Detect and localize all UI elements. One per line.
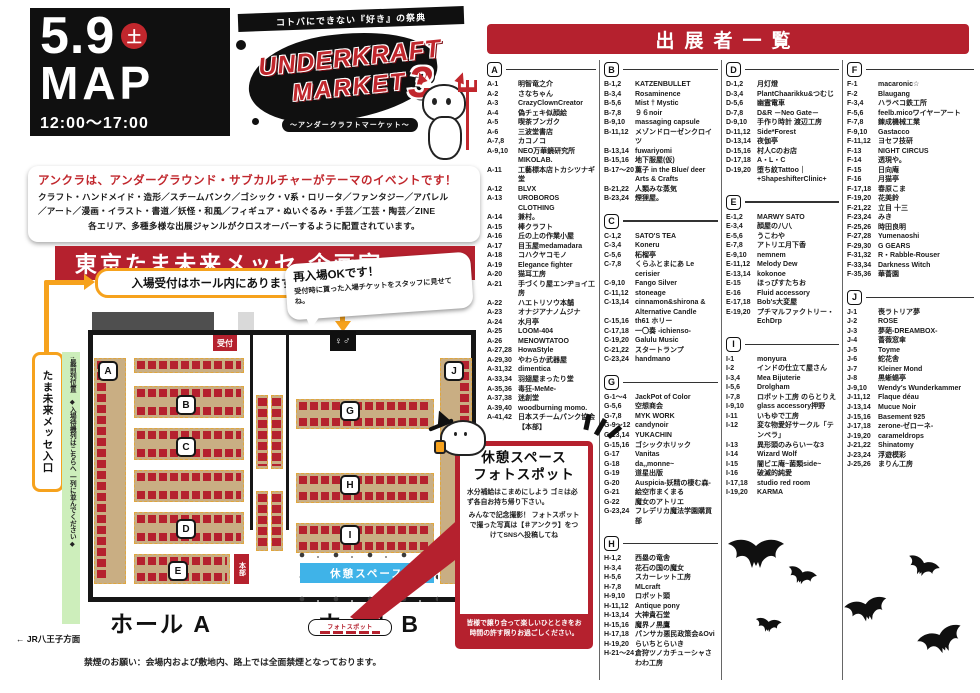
exhibitor-name: candynoir xyxy=(635,421,718,431)
exhibitor-name: くらふとまにあ Le cerisier xyxy=(635,260,718,279)
exhibitor-name: Elegance fighter xyxy=(518,261,596,271)
exhibitor-name: 蛇花舎 xyxy=(878,355,974,365)
hall-badge-H: H xyxy=(340,475,360,495)
exhibitor-row: H-17,18パンサカ悪民政策会&Ovi xyxy=(604,630,718,640)
exhibitor-name: feelb.micoワイヤーアート xyxy=(878,109,974,119)
exhibitor-row: G-5,6空想商会 xyxy=(604,402,718,412)
exhibitor-row: E-9,10nemnem xyxy=(726,251,839,261)
booth-code: C-17,18 xyxy=(604,327,635,337)
booth-code: F-33,34 xyxy=(847,261,878,271)
exhibitor-name: Vanitas xyxy=(635,450,718,460)
exhibitor-name: Galulu Music xyxy=(635,336,718,346)
exhibitor-name: さなちゃん xyxy=(518,90,596,100)
booth-code: I-19,20 xyxy=(726,488,757,498)
booth-code: F-14 xyxy=(847,156,878,166)
booth-code: I-14 xyxy=(726,450,757,460)
exhibitor-name: Bob's大変屋 xyxy=(757,298,839,308)
exhibitor-row: G-7,8MYK WORK xyxy=(604,412,718,422)
exhibitor-row: G-17Vanitas xyxy=(604,450,718,460)
restroom-icon: ♀♂ xyxy=(330,331,356,351)
exhibitor-name: Wendy's Wunderkammer xyxy=(878,384,974,394)
booth-code: H-3,4 xyxy=(604,564,635,574)
booth-code: F-17,18 xyxy=(847,185,878,195)
exhibitor-row: A-5喫茶ブンガク xyxy=(487,118,596,128)
exhibitor-name: ROSE xyxy=(878,317,974,327)
exhibitor-row: D-9,10手作り時計 渡辺工房 xyxy=(726,118,839,128)
exhibitor-name: cinnamon&shirona & Alternative Candle xyxy=(635,298,718,317)
jr-direction-note: ← JR八王子方面 xyxy=(16,633,80,645)
intro-note: 各エリア、多種多様な出展ジャンルがクロスオーバーするように配置されています。 xyxy=(38,220,470,232)
exhibitor-name: まりん工房 xyxy=(878,460,974,470)
exhibitor-name: NIGHT CIRCUS xyxy=(878,147,974,157)
venue-map: 入場受付はホール内にあります 再入場OKです！ 受付時に貰った入場チケットをスタ… xyxy=(0,255,490,693)
booth-code: F-9,10 xyxy=(847,128,878,138)
booth-code: F-11,12 xyxy=(847,137,878,147)
day-of-week-badge: 土 xyxy=(121,23,147,49)
exhibitor-name: 一〇奏 -ichienso- xyxy=(635,327,718,337)
section-letter-badge: E xyxy=(726,195,741,210)
booth-code: A-23 xyxy=(487,308,518,318)
section-letter-badge: A xyxy=(487,62,502,77)
exhibitor-name: 水月亭 xyxy=(518,318,596,328)
exhibitor-name: 柘榴亭 xyxy=(635,251,718,261)
exhibitor-row: J-21,22Shinatomy xyxy=(847,441,974,451)
exhibitor-row: H-19,20らいちとらいき xyxy=(604,640,718,650)
exhibitor-row: H-5,6スカーレット工房 xyxy=(604,573,718,583)
exhibitor-row: A-19Elegance fighter xyxy=(487,261,596,271)
booth-code: B-1,2 xyxy=(604,80,635,90)
booth-block xyxy=(134,470,244,502)
exhibitor-name: studio red room xyxy=(757,479,839,489)
booth-code: G-1〜4 xyxy=(604,393,635,403)
booth-code: E-13,14 xyxy=(726,270,757,280)
hall-badge-C: C xyxy=(176,437,196,457)
exhibitor-name: Fluid accessory xyxy=(757,289,839,299)
exhibitor-name: 絵空市まくまる xyxy=(635,488,718,498)
exhibitor-row: F-19,20花美鈴 xyxy=(847,194,974,204)
exhibitor-name: 夜伽亭 xyxy=(757,137,839,147)
queue-arrow xyxy=(44,282,49,354)
booth-code: J-17,18 xyxy=(847,422,878,432)
exhibitor-name: 闇ビエ庵~菌類side~ xyxy=(757,460,839,470)
exhibitor-row: F-35,36華薔園 xyxy=(847,270,974,280)
exhibitor-name: carameldrops xyxy=(878,432,974,442)
booth-code: E-16 xyxy=(726,289,757,299)
booth-code: C-19,20 xyxy=(604,336,635,346)
booth-code: A-19 xyxy=(487,261,518,271)
exhibitor-name: Shinatomy xyxy=(878,441,974,451)
exhibitor-row: J-19,20carameldrops xyxy=(847,432,974,442)
exhibitor-name: macaronic☆ xyxy=(878,80,974,90)
booth-code: B-21,22 xyxy=(604,185,635,195)
booth-code: D-15,16 xyxy=(726,147,757,157)
booth-code: H-13,14 xyxy=(604,611,635,621)
booth-code: A-1 xyxy=(487,80,518,90)
booth-code: G-23,24 xyxy=(604,507,635,526)
exhibitor-row: G-1〜4JackPot of Color xyxy=(604,393,718,403)
exhibitor-name: Yumenaoshi xyxy=(878,232,974,242)
exhibitor-row: C-11,12stoneage xyxy=(604,289,718,299)
exhibitor-row: B-9,10massaging capsule xyxy=(604,118,718,128)
intro-genres-line1: クラフト・ハンドメイド・造形／スチームパンク／ゴシック・V系・ロリータ／ファンタ… xyxy=(38,191,470,203)
exhibitor-row: G-21絵空市まくまる xyxy=(604,488,718,498)
exhibitor-name: Gastacco xyxy=(878,128,974,138)
exhibitor-name: Mist † Mystic xyxy=(635,99,718,109)
corridor-wall xyxy=(250,330,253,530)
exhibitor-name: 時田良明 xyxy=(878,223,974,233)
reception-desk: 受付 xyxy=(213,335,237,351)
exhibitor-row: J-11,12Flaque déau xyxy=(847,393,974,403)
reentry-bubble: 再入場OKです！ 受付時に貰った入場チケットをスタッフに見せてね。 xyxy=(284,252,473,321)
exhibitor-row: H-15,16魔界ノ黒鷹 xyxy=(604,621,718,631)
booth-code: C-3,4 xyxy=(604,241,635,251)
exhibitor-row: F-16月猫亭 xyxy=(847,175,974,185)
booth-code: E-15 xyxy=(726,279,757,289)
exhibitor-row: F-21,22立目 十三 xyxy=(847,204,974,214)
exhibitor-name: 薔薇窓傘 xyxy=(878,336,974,346)
exhibitor-name: 倉狩ツノカチューシャさわわ工房 xyxy=(635,649,718,668)
booth-code: F-25,26 xyxy=(847,223,878,233)
hall-a-label: ホール A xyxy=(110,605,212,639)
exhibitor-row: J-2ROSE xyxy=(847,317,974,327)
exhibitor-row: A-25LOOM-404 xyxy=(487,327,596,337)
exhibitor-name: Mucue Noir xyxy=(878,403,974,413)
exhibitor-name: ９６noir xyxy=(635,109,718,119)
exhibitor-name: ヨセフ技研 xyxy=(878,137,974,147)
exhibitor-name: 目玉屋medamadara xyxy=(518,242,596,252)
exhibitor-row: E-16Fluid accessory xyxy=(726,289,839,299)
exhibitor-column: FF-1macaronic☆F-2BlaugangF-3,4ハラペコ鉄工所F-5… xyxy=(842,60,977,680)
exhibitor-row: F-31,32R・Rabble-Rouser xyxy=(847,251,974,261)
exhibitor-row: F-33,34Darkness Witch xyxy=(847,261,974,271)
booth-code: C-7,8 xyxy=(604,260,635,279)
exhibitor-name: 錬成機械工業 xyxy=(878,118,974,128)
exhibitor-row: I-19,20KARMA xyxy=(726,488,839,498)
exhibitor-name: 棒クラフト xyxy=(518,223,596,233)
exhibitor-row: A-12BLVX xyxy=(487,185,596,195)
booth-code: J-1 xyxy=(847,308,878,318)
exhibitor-row: C-21,22スタートランプ xyxy=(604,346,718,356)
exhibitor-row: A-23オナジアナノムジナ xyxy=(487,308,596,318)
event-date: 5.9 xyxy=(40,10,115,62)
exhibitor-row: I-3,4Mea Bijuterie xyxy=(726,374,839,384)
exhibitor-row: B-1,2KATZENBULLET xyxy=(604,80,718,90)
booth-code: F-27,28 xyxy=(847,232,878,242)
booth-code: A-11 xyxy=(487,166,518,185)
exhibitor-row: C-9,10Fango Silver xyxy=(604,279,718,289)
exhibitor-row: A-37,38迷創堂 xyxy=(487,394,596,404)
exhibitor-row: F-3,4ハラペコ鉄工所 xyxy=(847,99,974,109)
booth-code: C-21,22 xyxy=(604,346,635,356)
exhibitor-row: F-5,6feelb.micoワイヤーアート xyxy=(847,109,974,119)
exhibitor-row: J-9,10Wendy's Wunderkammer xyxy=(847,384,974,394)
exhibitor-row: D-3,4PlantChaarikku&つむじ xyxy=(726,90,839,100)
section-header-J: J xyxy=(847,290,974,305)
exhibitor-row: J-8黒蜥蜴亭 xyxy=(847,374,974,384)
booth-code: H-5,6 xyxy=(604,573,635,583)
exhibitor-name: da,,monne~ xyxy=(635,460,718,470)
exhibitor-row: I-16破滅的純愛 xyxy=(726,469,839,479)
queue-lane: ↑最前列位置 ◆入場待機列はこちらへ 一列に並んでください◆ xyxy=(62,352,80,624)
info-hydration-note: 水分補給はこまめにしよう ゴミは必ず各自お持ち帰り下さい。 xyxy=(467,488,581,508)
intro-banner: アンクラは、アンダーグラウンド・サブカルチャーがテーマのイベントです！ クラフト… xyxy=(28,166,480,242)
exhibitor-name: Flaque déau xyxy=(878,393,974,403)
booth-code: B-7,8 xyxy=(604,109,635,119)
booth-code: I-3,4 xyxy=(726,374,757,384)
booth-code: G-21 xyxy=(604,488,635,498)
booth-code: B-11,12 xyxy=(604,128,635,147)
exhibitor-name: th61 ホリー xyxy=(635,317,718,327)
booth-code: F-19,20 xyxy=(847,194,878,204)
exhibitor-name: 薫子 in the Blue/ deer Arts & Crafts xyxy=(635,166,718,185)
section-header-A: A xyxy=(487,62,596,77)
exhibitor-name: スカーレット工房 xyxy=(635,573,718,583)
exhibitor-name: PlantChaarikku&つむじ xyxy=(757,90,839,100)
hall-badge-J: J xyxy=(444,361,464,381)
exhibitor-name: 西塁の竜舎 xyxy=(635,554,718,564)
booth-code: D-5,6 xyxy=(726,99,757,109)
booth-code: A-41,42 xyxy=(487,413,518,432)
exhibitor-name: 顔屋の八八 xyxy=(757,222,839,232)
booth-code: B-17〜20 xyxy=(604,166,635,185)
exhibitor-name: 明智竜之介 xyxy=(518,80,596,90)
booth-code: G-5,6 xyxy=(604,402,635,412)
booth-code: A-26 xyxy=(487,337,518,347)
exhibitor-row: A-26MENOWTATOO xyxy=(487,337,596,347)
booth-code: A-27,28 xyxy=(487,346,518,356)
booth-code: F-15 xyxy=(847,166,878,176)
exhibitor-name: handmano xyxy=(635,355,718,365)
exhibitor-name: 月灯燈 xyxy=(757,80,839,90)
exhibitor-row: D-19,20堕ち紋Tattoo｜ +ShapeshifterClinic+ xyxy=(726,166,839,185)
booth-code: F-5,6 xyxy=(847,109,878,119)
booth-code: A-25 xyxy=(487,327,518,337)
booth-code: H-1,2 xyxy=(604,554,635,564)
booth-code: D-1,2 xyxy=(726,80,757,90)
exhibitor-name: アトリエ月下香 xyxy=(757,241,839,251)
booth-code: A-14 xyxy=(487,213,518,223)
exhibitor-row: I-1monyura xyxy=(726,355,839,365)
exhibitor-row: A-2さなちゃん xyxy=(487,90,596,100)
booth-code: E-9,10 xyxy=(726,251,757,261)
exhibitor-name: カコノコ xyxy=(518,137,596,147)
exhibitor-name: 羽翅屋まったり堂 xyxy=(518,375,596,385)
exhibitor-row: A-35,36毒狂-MeMe- xyxy=(487,385,596,395)
exhibitor-row: I-11いもゆで工房 xyxy=(726,412,839,422)
exhibitor-row: F-1macaronic☆ xyxy=(847,80,974,90)
booth-code: A-13 xyxy=(487,194,518,213)
exhibitor-list-title: 出展者一覧 xyxy=(487,24,969,54)
exhibitor-name: Rosaminence xyxy=(635,90,718,100)
exhibitor-name: 異形頭のみらいーな3 xyxy=(757,441,839,451)
exhibitor-column: DD-1,2月灯燈D-3,4PlantChaarikku&つむじD-5,6幽霊電… xyxy=(721,60,842,680)
booth-code: C-1,2 xyxy=(604,232,635,242)
hall-badge-I: I xyxy=(340,525,360,545)
booth-block-f xyxy=(271,395,283,469)
exhibitor-name: MLcraft xyxy=(635,583,718,593)
booth-code: D-3,4 xyxy=(726,90,757,100)
section-header-C: C xyxy=(604,214,718,229)
exhibitor-row: I-12変な物愛好サークル「テンペラ」 xyxy=(726,421,839,440)
exhibitor-row: A-18コハクヤコモノ xyxy=(487,251,596,261)
booth-column-a xyxy=(94,358,126,584)
exhibitor-row: F-17,18春原こま xyxy=(847,185,974,195)
exhibitor-name: Side*Forest xyxy=(757,128,839,138)
exhibitor-row: J-17,18zerone-ゼローネ- xyxy=(847,422,974,432)
exhibitor-name: 幽霊電車 xyxy=(757,99,839,109)
exhibitor-name: ロボット工房 のらとりえ xyxy=(757,393,839,403)
booth-code: B-23,24 xyxy=(604,194,635,204)
booth-code: D-7,8 xyxy=(726,109,757,119)
exhibitor-row: H-3,4花石の国の魔女 xyxy=(604,564,718,574)
exhibitor-name: ほっぴすたちお xyxy=(757,279,839,289)
lantern-icon xyxy=(434,440,446,454)
exhibitor-row: F-27,28Yumenaoshi xyxy=(847,232,974,242)
exhibitor-name: 兼村。 xyxy=(518,213,596,223)
exhibitor-row: F-14透現や。 xyxy=(847,156,974,166)
booth-code: H-9,10 xyxy=(604,592,635,602)
exhibitor-name: やわらか武器屋 xyxy=(518,356,596,366)
exhibitor-row: I-17,18studio red room xyxy=(726,479,839,489)
exhibitor-name: 月猫亭 xyxy=(878,175,974,185)
exhibitor-name: Koneru xyxy=(635,241,718,251)
exhibitor-row: B-7,8９６noir xyxy=(604,109,718,119)
exhibitor-name: 丘の上の作業小屋 xyxy=(518,232,596,242)
exhibitor-row: E-11,12Melody Dew xyxy=(726,260,839,270)
booth-code: F-2 xyxy=(847,90,878,100)
exhibitor-row: I-9,10glass accessory押野 xyxy=(726,402,839,412)
exhibitor-row: E-17,18Bob's大変屋 xyxy=(726,298,839,308)
booth-code: J-21,22 xyxy=(847,441,878,451)
exhibitor-row: C-13,14cinnamon&shirona & Alternative Ca… xyxy=(604,298,718,317)
exhibitor-name: 煙狸屋。 xyxy=(635,194,718,204)
booth-block-f xyxy=(256,491,268,551)
section-letter-badge: C xyxy=(604,214,619,229)
exhibitor-row: F-23,24みき xyxy=(847,213,974,223)
exhibitor-row: H-21〜24倉狩ツノカチューシャさわわ工房 xyxy=(604,649,718,668)
booth-code: E-11,12 xyxy=(726,260,757,270)
booth-code: F-7,8 xyxy=(847,118,878,128)
exhibitor-row: G-20Auspicia-妖精の棲む森- xyxy=(604,479,718,489)
booth-code: C-5,6 xyxy=(604,251,635,261)
section-header-D: D xyxy=(726,62,839,77)
exhibitor-row: A-21手づくり屋エンヂョイ工房 xyxy=(487,280,596,299)
exhibitor-name: 道星出版 xyxy=(635,469,718,479)
exhibitor-name: スタートランプ xyxy=(635,346,718,356)
exhibitor-row: B-11,12メゾンドローゼンクロイツ xyxy=(604,128,718,147)
booth-code: I-7,8 xyxy=(726,393,757,403)
exhibitor-row: I-2インドの仕立て屋さん xyxy=(726,364,839,374)
exhibitor-name: kokonoe xyxy=(757,270,839,280)
mascot-body xyxy=(428,116,462,160)
booth-code: I-15 xyxy=(726,460,757,470)
booth-code: A-7,8 xyxy=(487,137,518,147)
exhibitor-name: 地下服屋(仮) xyxy=(635,156,718,166)
section-letter-badge: J xyxy=(847,290,862,305)
exhibitor-row: J-1喪ラトリア夢 xyxy=(847,308,974,318)
exhibitor-row: A-27,28HowaStyle xyxy=(487,346,596,356)
tagline-ribbon: コトバにできない『好き』の祭典 xyxy=(238,6,464,32)
booth-code: B-13,14 xyxy=(604,147,635,157)
exhibitor-row: F-7,8錬成機械工業 xyxy=(847,118,974,128)
exhibitor-name: G GEARS xyxy=(878,242,974,252)
exhibitor-name: Auspicia-妖精の棲む森- xyxy=(635,479,718,489)
exhibitor-row: D-11,12Side*Forest xyxy=(726,128,839,138)
exhibitor-name: 透現や。 xyxy=(878,156,974,166)
exhibitor-row: F-2Blaugang xyxy=(847,90,974,100)
booth-code: F-1 xyxy=(847,80,878,90)
booth-code: G-18 xyxy=(604,460,635,470)
exhibitor-name: Melody Dew xyxy=(757,260,839,270)
exhibitor-name: パンサカ悪民政策会&Ovi xyxy=(635,630,718,640)
section-header-B: B xyxy=(604,62,718,77)
exhibitor-row: C-5,6柘榴亭 xyxy=(604,251,718,261)
exhibitor-name: 魔界ノ黒鷹 xyxy=(635,621,718,631)
exhibitor-row: J-23,24浮遊模彩 xyxy=(847,451,974,461)
exhibitor-row: E-13,14kokonoe xyxy=(726,270,839,280)
exhibitor-name: glass accessory押野 xyxy=(757,402,839,412)
exhibitor-name: 人類みな蒸気 xyxy=(635,185,718,195)
booth-code: C-9,10 xyxy=(604,279,635,289)
exhibitor-name: らいちとらいき xyxy=(635,640,718,650)
logo-subtitle: 〜アンダークラフトマーケット〜 xyxy=(282,118,418,132)
section-header-I: I xyxy=(726,337,839,352)
exhibitor-name: Drolgham xyxy=(757,383,839,393)
booth-block-g xyxy=(296,399,434,429)
booth-code: I-16 xyxy=(726,469,757,479)
exhibitor-row: A-22ハエトリソウ本舗 xyxy=(487,299,596,309)
booth-code: A-24 xyxy=(487,318,518,328)
exhibitor-name: うこわや xyxy=(757,232,839,242)
exhibitor-name: CrazyClownCreator xyxy=(518,99,596,109)
booth-code: J-13,14 xyxy=(847,403,878,413)
section-letter-badge: F xyxy=(847,62,862,77)
booth-code: I-17,18 xyxy=(726,479,757,489)
exhibitor-row: J-15,16Basement 925 xyxy=(847,413,974,423)
booth-code: H-11,12 xyxy=(604,602,635,612)
exhibitor-row: H-13,14大神貴石堂 xyxy=(604,611,718,621)
hq-booth: 本部 xyxy=(234,554,249,584)
section-letter-badge: B xyxy=(604,62,619,77)
exhibitor-name: Fango Silver xyxy=(635,279,718,289)
exhibitor-row: I-15闇ビエ庵~菌類side~ xyxy=(726,460,839,470)
exhibitor-row: A-16丘の上の作業小屋 xyxy=(487,232,596,242)
exhibitor-row: E-7,8アトリエ月下香 xyxy=(726,241,839,251)
section-header-H: H xyxy=(604,536,718,551)
exhibitor-name: UROBOROS CLOTHING xyxy=(518,194,596,213)
section-header-G: G xyxy=(604,375,718,390)
booth-code: A-31,32 xyxy=(487,365,518,375)
booth-code: C-23,24 xyxy=(604,355,635,365)
booth-code: I-11 xyxy=(726,412,757,422)
booth-row xyxy=(134,358,244,373)
booth-code: E-5,6 xyxy=(726,232,757,242)
hall-badge-E: E xyxy=(168,561,188,581)
exhibitor-row: C-23,24handmano xyxy=(604,355,718,365)
booth-code: G-19 xyxy=(604,469,635,479)
booth-code: A-15 xyxy=(487,223,518,233)
section-header-E: E xyxy=(726,195,839,210)
event-flyer: 5.9 土 MAP 12:00〜17:00 コトバにできない『好き』の祭典 UN… xyxy=(0,0,980,693)
exhibitor-name: みき xyxy=(878,213,974,223)
booth-code: J-25,26 xyxy=(847,460,878,470)
exhibitor-name: 猫耳工房 xyxy=(518,270,596,280)
exhibitor-row: C-3,4Koneru xyxy=(604,241,718,251)
booth-code: A-39,40 xyxy=(487,404,518,414)
exhibitor-name: NEO万華鏡研究所MIKOLAB. xyxy=(518,147,596,166)
exhibitor-name: 村人Cのお店 xyxy=(757,147,839,157)
exhibitor-row: E-1,2MARWY SATO xyxy=(726,213,839,223)
